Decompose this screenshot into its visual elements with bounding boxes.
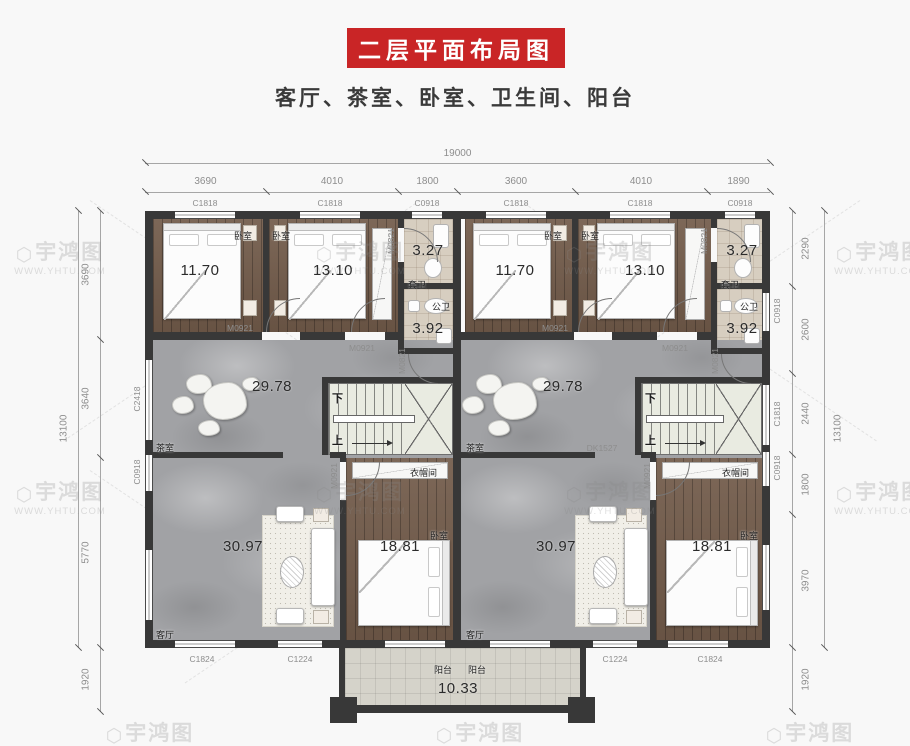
yhtu-logo-icon: ⬡ [566,245,583,266]
dim-label: 4010 [575,176,707,187]
window-label: C0918 [772,288,782,334]
page-title: 二层平面布局图 [347,28,565,68]
window-label: C0918 [397,198,457,208]
party-wall [453,219,461,640]
stair-wall [322,377,328,455]
watermark: ⬡宇鸿图 WWW.YHTU.COM [275,241,445,278]
window-c1818 [610,211,670,219]
rock-decor [172,396,194,414]
yhtu-logo-icon: ⬡ [436,726,453,746]
stair-direction-arrow [665,443,703,444]
room-tag-cloak: 衣帽间 [410,466,437,479]
dim-label: 19000 [145,148,770,159]
fixture [720,300,732,312]
yhtu-logo-icon: ⬡ [16,485,33,506]
stair-rail [333,415,415,423]
door-label-m0921: M0921 [525,323,585,333]
balcony-door-tlm2127 [385,640,445,648]
rock-decor [462,396,484,414]
dim-label: 3690 [145,176,266,187]
window-c0918 [412,211,442,219]
dim-line [145,163,770,164]
stair-up-label: 上 [332,432,343,448]
interior-wall [153,332,262,340]
window [145,550,153,620]
watermark: ⬡宇鸿图 [725,722,895,746]
yhtu-logo-icon: ⬡ [106,726,123,746]
dim-label: 4010 [266,176,398,187]
fixture [408,300,420,312]
dim-label: 5770 [81,530,92,576]
watermark: ⬡宇鸿图 WWW.YHTU.COM [525,481,695,518]
room-tag-balcony: 阳台 [434,663,452,676]
area-bedroom-c-left: 18.81 [370,538,430,555]
room-tag-bedroom: 卧室 [234,229,252,242]
yhtu-logo-icon: ⬡ [566,485,583,506]
room-tag-living: 客厅 [466,628,484,641]
dim-label: 1800 [398,176,457,187]
window-c1818 [300,211,360,219]
side-table [626,610,642,624]
room-tag-living: 客厅 [156,628,174,641]
window-label: C0918 [772,445,782,491]
yhtu-logo-icon: ⬡ [766,726,783,746]
exterior-wall-top [145,211,770,219]
coffee-table [280,556,304,588]
interior-wall [461,332,574,340]
dim-label: 3600 [457,176,575,187]
yhtu-logo-icon: ⬡ [16,245,33,266]
window [762,545,770,610]
armchair [276,608,304,624]
window-label: C1824 [675,654,745,664]
interior-wall [398,219,404,228]
window-label: C1818 [300,198,360,208]
balcony-post [330,697,357,723]
window-label: C1818 [486,198,546,208]
dim-label: 2600 [801,307,812,353]
watermark: ⬡宇鸿图 WWW.YHTU.COM [525,241,695,278]
area-tea-right: 29.78 [533,378,593,395]
rock-decor [198,420,220,436]
window-c0918 [762,452,770,486]
window-label: C1818 [772,391,782,437]
watermark: ⬡宇鸿图 WWW.YHTU.COM [795,481,910,518]
door-label-m0821: M0821 [397,338,407,384]
area-tea-left: 29.78 [242,378,302,395]
watermark: ⬡宇鸿图 [65,722,235,746]
yhtu-logo-icon: ⬡ [316,245,333,266]
window-c2418 [145,360,153,440]
balcony-rail [352,705,578,713]
room-tag-bedroom: 卧室 [740,529,758,542]
rock-decor [493,382,537,420]
room-tag-tea: 茶室 [156,441,174,454]
interior-wall [650,500,656,640]
yhtu-logo-icon: ⬡ [316,485,333,506]
rock-decor [203,382,247,420]
sofa [311,528,335,606]
watermark: ⬡宇鸿图 [395,722,565,746]
dim-label: 2440 [801,391,812,437]
stair-wall [635,377,641,455]
window-label: C0918 [710,198,770,208]
room-tag-public-bath: 公卫 [740,300,758,313]
door-label-m0921: M0921 [645,343,705,353]
room-tag-cloak: 衣帽间 [722,466,749,479]
coffee-table [593,556,617,588]
room-tag-tea: 茶室 [466,441,484,454]
dim-label: 13100 [833,404,844,454]
area-living-right: 30.97 [526,538,586,555]
window-label: C2418 [132,376,142,422]
area-bedroom-a-left: 11.70 [170,262,230,279]
window-label: C1818 [175,198,235,208]
door-label-m0821: M0821 [710,338,720,384]
room-tag-suite-bath: 套卫 [721,278,739,291]
armchair [589,608,617,624]
area-public-bath-left: 3.92 [398,320,458,337]
stair-up-label: 上 [645,432,656,448]
window-label: C1224 [580,654,650,664]
yhtu-logo-icon: ⬡ [836,245,853,266]
interior-wall [263,219,269,332]
dim-label: 3970 [801,558,812,604]
stair-down-label: 下 [645,390,656,406]
page-subtitle: 客厅、茶室、卧室、卫生间、阳台 [0,82,910,112]
watermark: ⬡宇鸿图 WWW.YHTU.COM [0,481,145,518]
watermark: ⬡宇鸿图 WWW.YHTU.COM [795,241,910,278]
dim-label: 13100 [59,404,70,454]
opening-label-dk1527: DK1527 [572,443,632,453]
area-balcony: 10.33 [428,680,488,697]
interior-wall [711,219,717,228]
balcony-door-tlm2127 [490,640,550,648]
area-public-bath-right: 3.92 [712,320,772,337]
stair-down-label: 下 [332,390,343,406]
window-label: C1824 [167,654,237,664]
stair-rail [646,415,724,423]
watermark: ⬡宇鸿图 WWW.YHTU.COM [275,481,445,518]
door-label-m0921: M0921 [210,323,270,333]
window-c1818 [762,385,770,445]
dim-label: 1890 [707,176,770,187]
window-c1818 [486,211,546,219]
side-table [313,610,329,624]
nightstand [553,300,567,316]
window-c1818 [175,211,235,219]
window-c0918 [145,455,153,491]
dim-label: 1920 [801,657,812,703]
dim-label: 1920 [81,657,92,703]
room-tag-public-bath: 公卫 [432,300,450,313]
window-c1824 [175,640,235,648]
dim-label: 3640 [81,376,92,422]
window-c1824 [668,640,728,648]
yhtu-logo-icon: ⬡ [836,485,853,506]
interior-wall [697,332,711,340]
interior-wall [340,452,346,462]
interior-wall [340,500,346,640]
interior-wall [300,332,345,340]
area-bedroom-c-right: 18.81 [682,538,742,555]
dim-line [100,211,101,712]
floor-plan-sheet: 二层平面布局图 客厅、茶室、卧室、卫生间、阳台 19000 3690 4010 … [0,0,910,746]
window-c1224 [593,640,637,648]
rock-decor [488,420,510,436]
window-c1224 [278,640,322,648]
window-label: C1818 [610,198,670,208]
nightstand [243,300,257,316]
area-suite-bath-right: 3.27 [712,242,772,259]
stair-direction-arrow [352,443,390,444]
interior-wall [612,332,657,340]
window-label: C1224 [265,654,335,664]
room-tag-bedroom: 卧室 [430,529,448,542]
door-label-m0921: M0921 [332,343,392,353]
sofa [624,528,648,606]
balcony-post [568,697,595,723]
watermark: ⬡宇鸿图 WWW.YHTU.COM [0,241,145,278]
area-living-left: 30.97 [213,538,273,555]
door-label-m0821: M0821 [699,218,709,264]
window-c0918 [725,211,755,219]
room-tag-suite-bath: 套卫 [408,278,426,291]
room-tag-balcony: 阳台 [468,663,486,676]
